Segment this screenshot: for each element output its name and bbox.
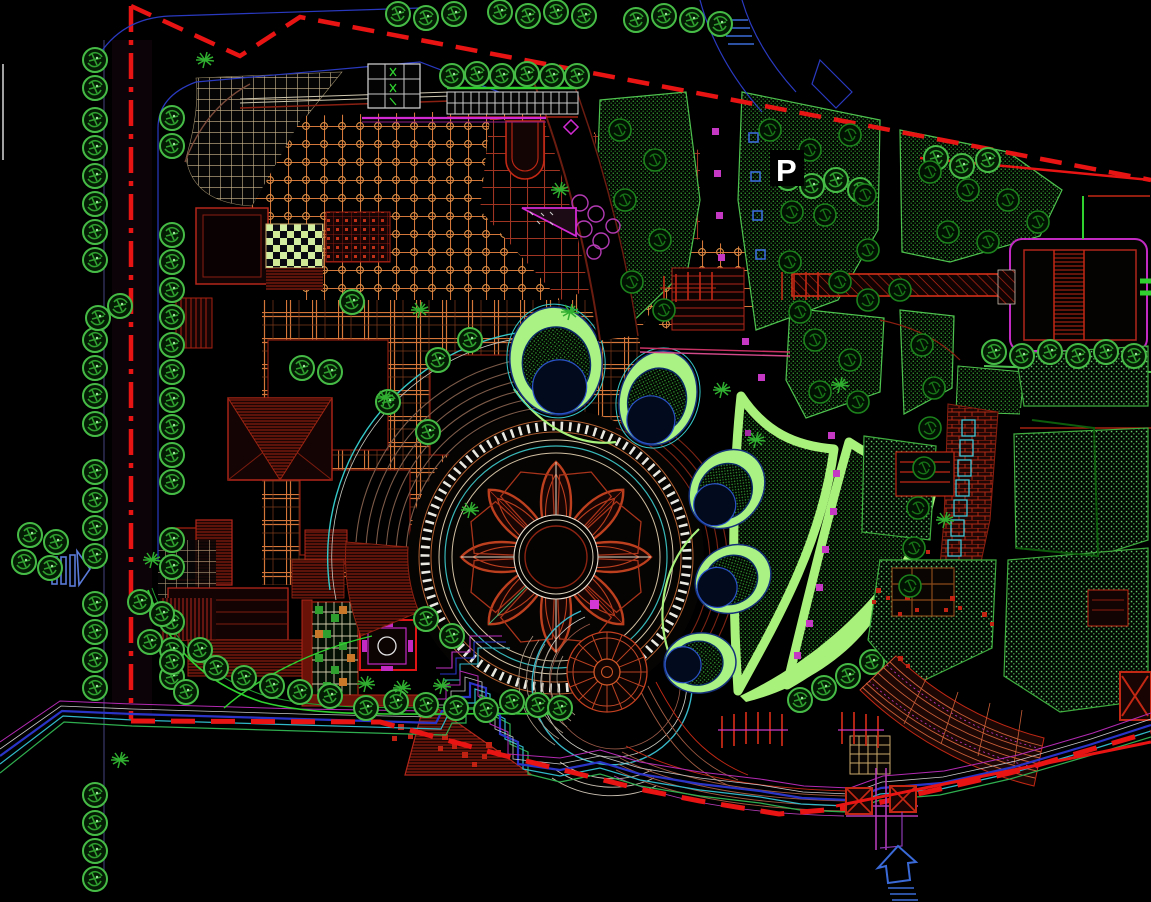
svg-text:P: P bbox=[776, 153, 797, 188]
